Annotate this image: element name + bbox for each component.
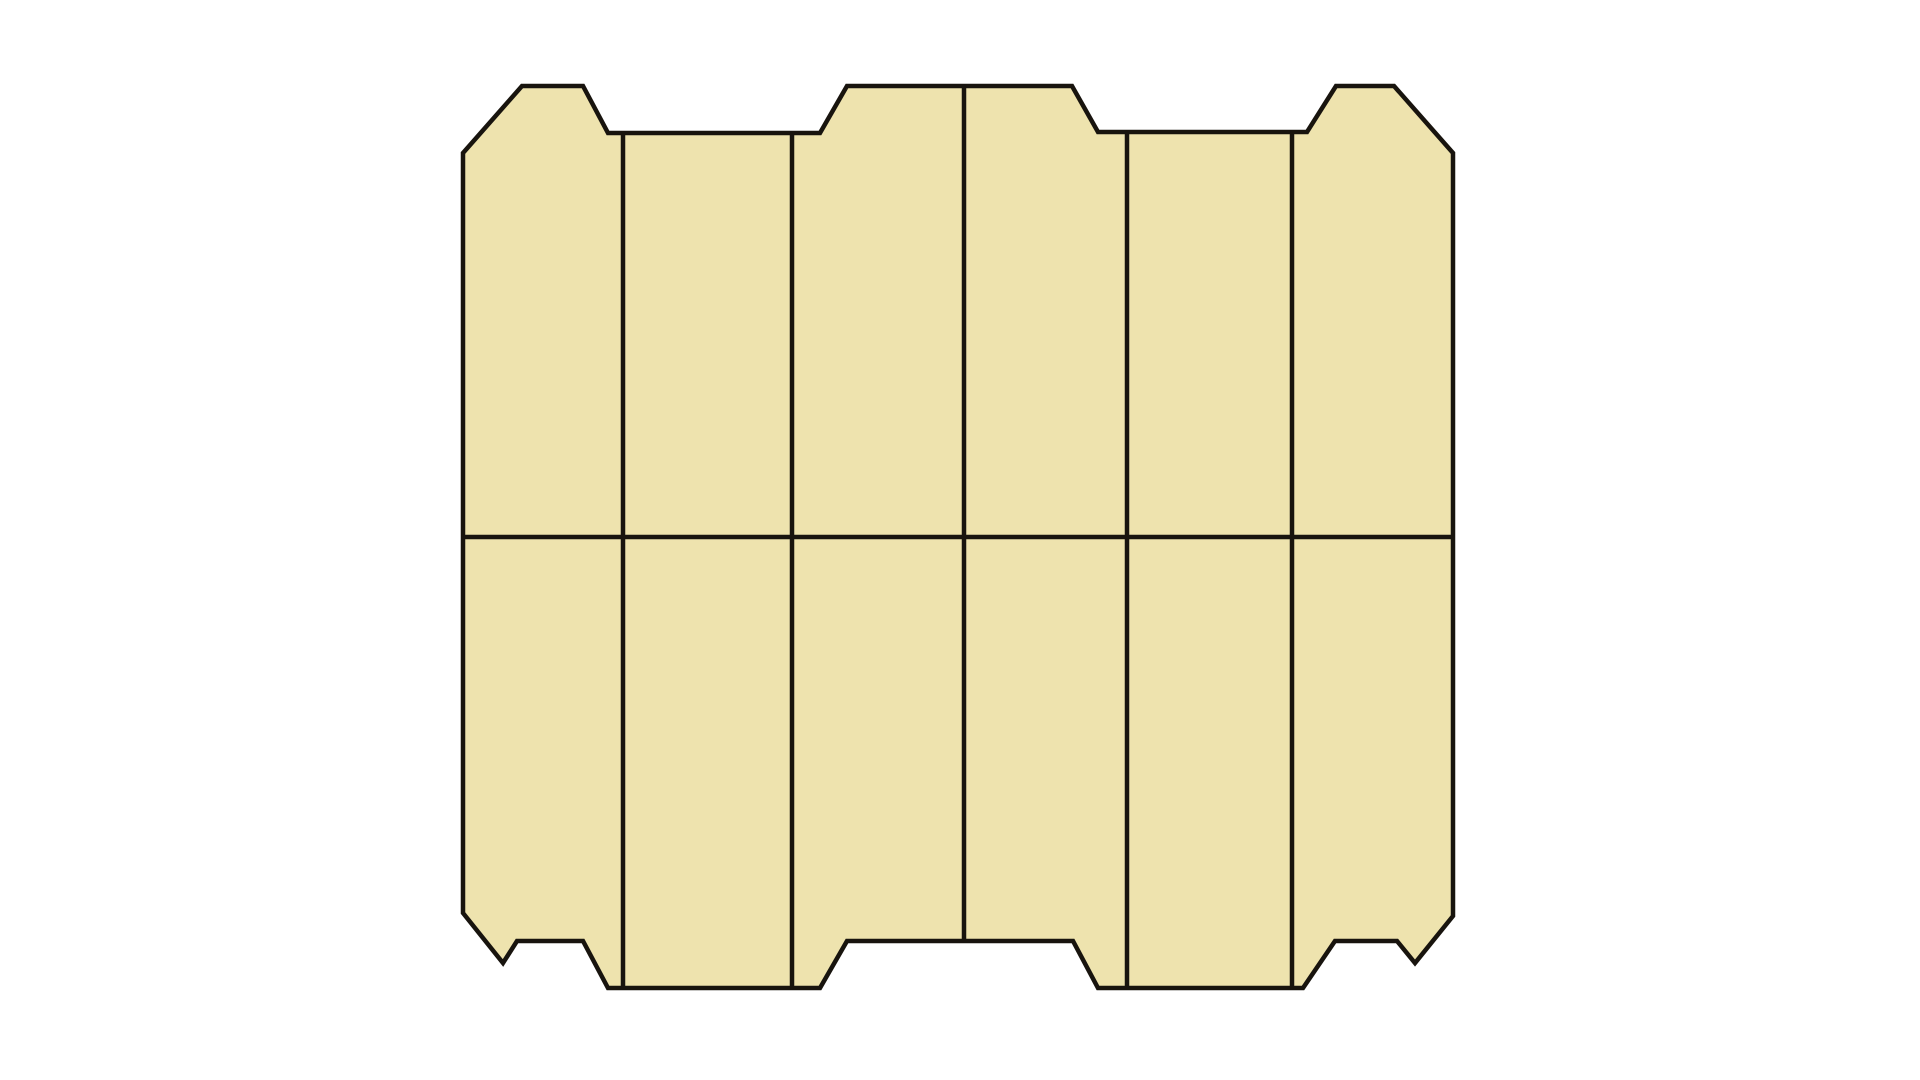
figure-stage (0, 0, 1920, 1080)
segmented-panel-figure (0, 0, 1920, 1080)
